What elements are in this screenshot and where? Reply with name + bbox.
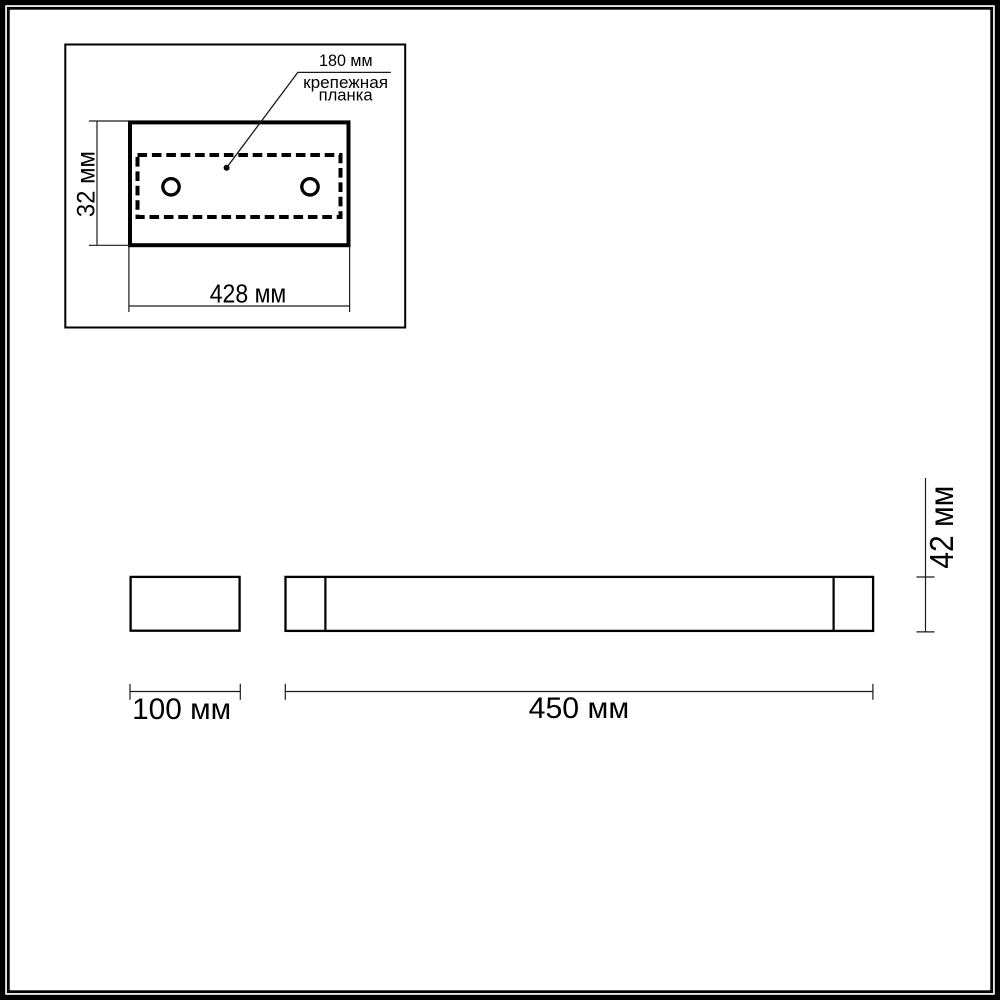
svg-text:180 мм: 180 мм [319, 52, 373, 70]
svg-text:32 мм: 32 мм [72, 151, 100, 217]
svg-text:428 мм: 428 мм [210, 281, 287, 309]
svg-text:100 мм: 100 мм [132, 693, 231, 726]
svg-text:42 мм: 42 мм [923, 486, 960, 569]
svg-text:планка: планка [319, 86, 374, 105]
svg-text:450 мм: 450 мм [529, 692, 630, 725]
